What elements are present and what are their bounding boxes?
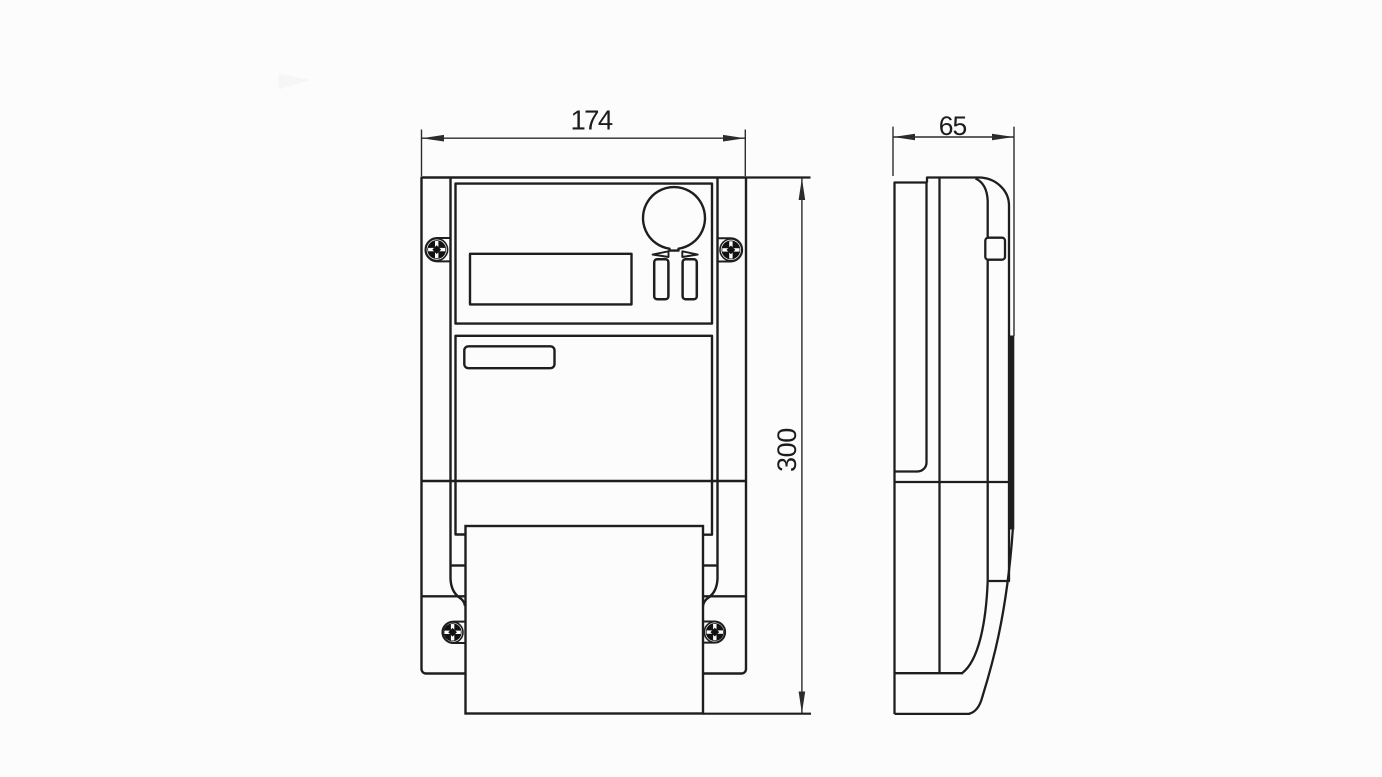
svg-text:65: 65 xyxy=(939,111,967,141)
svg-text:174: 174 xyxy=(570,105,612,136)
svg-text:300: 300 xyxy=(772,428,802,472)
